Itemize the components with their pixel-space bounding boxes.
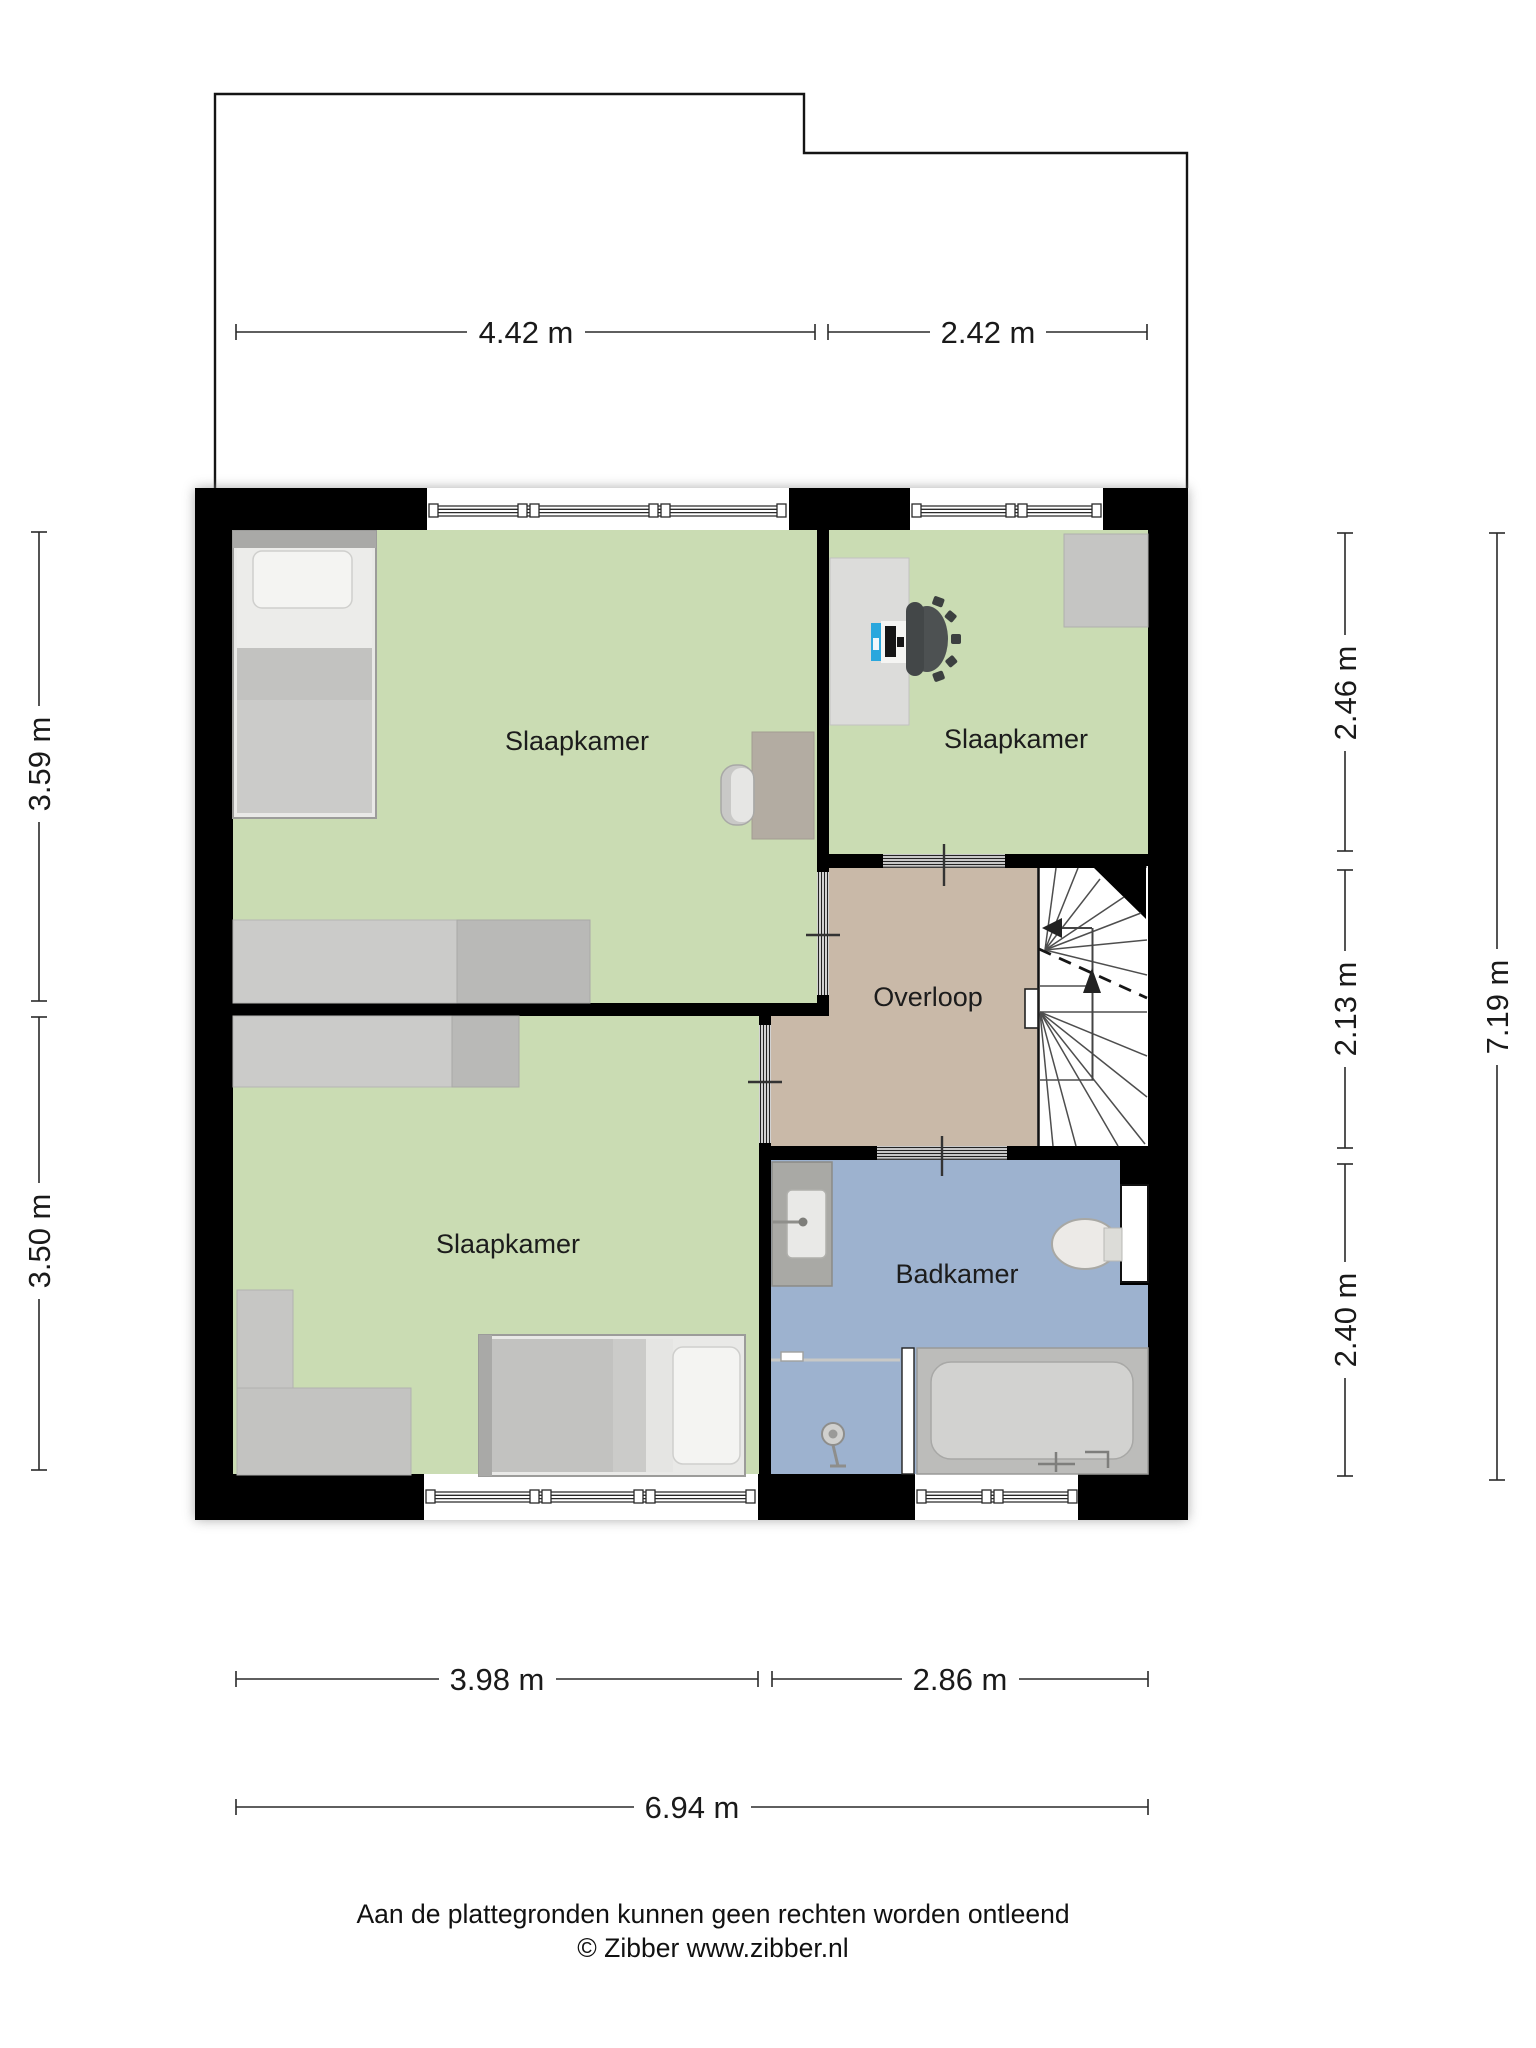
- svg-text:Slaapkamer: Slaapkamer: [944, 724, 1088, 754]
- svg-text:Slaapkamer: Slaapkamer: [505, 726, 649, 756]
- svg-text:Overloop: Overloop: [873, 982, 983, 1012]
- svg-text:3.98 m: 3.98 m: [450, 1662, 545, 1697]
- svg-text:6.94 m: 6.94 m: [645, 1790, 740, 1825]
- svg-text:4.42 m: 4.42 m: [479, 315, 574, 350]
- svg-text:2.46 m: 2.46 m: [1328, 646, 1363, 741]
- svg-text:7.19 m: 7.19 m: [1480, 960, 1515, 1055]
- svg-text:3.50 m: 3.50 m: [22, 1194, 57, 1289]
- svg-text:2.13 m: 2.13 m: [1328, 962, 1363, 1057]
- svg-text:2.40 m: 2.40 m: [1328, 1273, 1363, 1368]
- svg-text:Aan de plattegronden kunnen ge: Aan de plattegronden kunnen geen rechten…: [356, 1899, 1069, 1929]
- svg-text:2.86 m: 2.86 m: [913, 1662, 1008, 1697]
- svg-text:3.59 m: 3.59 m: [22, 717, 57, 812]
- svg-text:Slaapkamer: Slaapkamer: [436, 1229, 580, 1259]
- svg-text:Badkamer: Badkamer: [895, 1259, 1018, 1289]
- svg-text:2.42 m: 2.42 m: [941, 315, 1036, 350]
- svg-text:© Zibber www.zibber.nl: © Zibber www.zibber.nl: [577, 1933, 848, 1963]
